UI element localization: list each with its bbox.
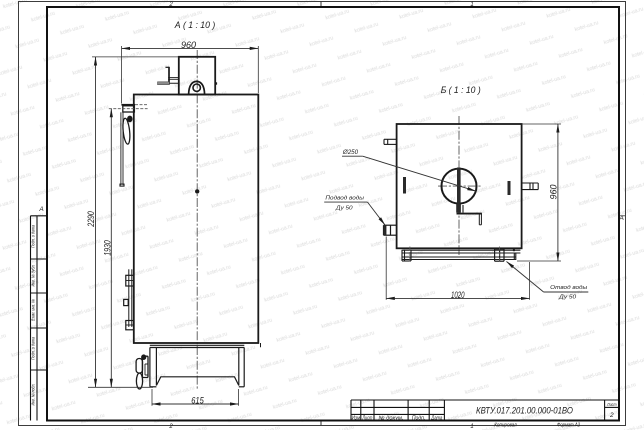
- svg-text:Б ( 1 : 10 ): Б ( 1 : 10 ): [441, 85, 481, 96]
- svg-text:2: 2: [168, 424, 173, 430]
- svg-text:2: 2: [609, 412, 614, 419]
- svg-text:А: А: [38, 206, 43, 213]
- svg-text:Лист: Лист: [606, 402, 616, 408]
- svg-text:Инв. № дубл.: Инв. № дубл.: [31, 265, 36, 287]
- svg-text:960: 960: [549, 184, 559, 199]
- svg-text:Подвод воды: Подвод воды: [325, 196, 364, 202]
- svg-text:1930: 1930: [102, 240, 112, 256]
- svg-text:Ду 50: Ду 50: [558, 295, 576, 301]
- svg-text:Формат А3: Формат А3: [557, 423, 580, 429]
- svg-text:Лист: Лист: [362, 416, 373, 422]
- svg-text:1: 1: [470, 424, 473, 430]
- svg-text:Ду 50: Ду 50: [335, 205, 353, 211]
- svg-text:А ( 1 : 10 ): А ( 1 : 10 ): [174, 20, 215, 31]
- svg-text:Взам. инв. №: Взам. инв. №: [31, 299, 36, 321]
- svg-text:Дата: Дата: [431, 416, 443, 422]
- svg-text:615: 615: [191, 395, 204, 405]
- svg-text:Подп.: Подп.: [412, 416, 426, 422]
- svg-text:Подп. и дата: Подп. и дата: [31, 224, 36, 248]
- svg-text:Отвод воды: Отвод воды: [550, 285, 587, 291]
- svg-text:Копировал: Копировал: [494, 423, 517, 429]
- svg-text:Инв. № подл.: Инв. № подл.: [31, 384, 36, 406]
- svg-text:КВТУ.017.201.00.000-01ВО: КВТУ.017.201.00.000-01ВО: [476, 405, 573, 415]
- svg-text:Изм: Изм: [352, 416, 361, 422]
- svg-text:Подп. и дата: Подп. и дата: [31, 336, 36, 360]
- svg-text:Ø250: Ø250: [342, 149, 359, 156]
- svg-text:№ докум.: № докум.: [379, 416, 404, 422]
- svg-text:2290: 2290: [86, 211, 96, 227]
- svg-text:1020: 1020: [451, 290, 465, 300]
- svg-text:960: 960: [181, 40, 196, 50]
